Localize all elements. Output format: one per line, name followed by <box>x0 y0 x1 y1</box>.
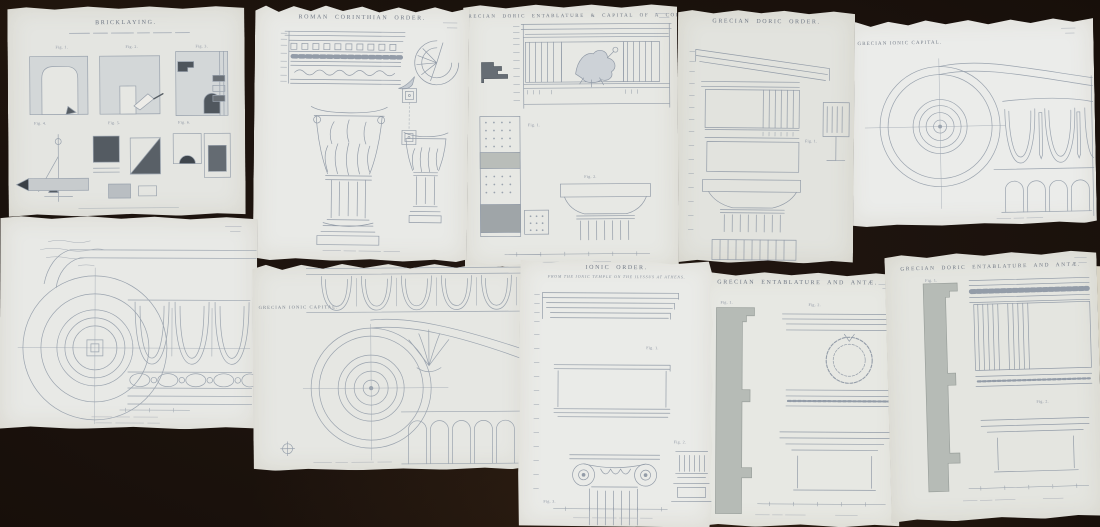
handwritten-inscription <box>40 240 104 266</box>
ionic-volute-drawing <box>843 16 1097 228</box>
plate-grecian-ionic-capital-bottom: GRECIAN IONIC CAPITAL. <box>252 261 525 471</box>
anta-profile-silhouette <box>715 308 754 514</box>
cornice-profile-silhouette <box>481 62 507 82</box>
corinthian-capital-large <box>310 106 387 245</box>
plate-roman-corinthian-order: ROMAN CORINTHIAN ORDER. <box>253 3 470 262</box>
ionic-volute-drawing <box>252 261 525 471</box>
plan-details <box>402 88 417 144</box>
plate-grecian-doric-entablature-capital: GRECIAN DORIC ENTABLATURE & CAPITAL OF A… <box>463 3 679 268</box>
base-detail <box>671 451 711 501</box>
guttae-panel <box>480 116 549 236</box>
modillion-row <box>291 43 396 50</box>
doric-order-drawing <box>676 9 855 264</box>
ionic-volute-drawing <box>0 216 257 430</box>
plate-grecian-doric-entablature-anta: GRECIAN DORIC ENTABLATURE AND ANTÆ. Fig.… <box>884 249 1100 523</box>
bricklaying-figures-drawing <box>7 5 245 217</box>
plate-ionic-order: IONIC ORDER. FROM THE IONIC TEMPLE ON TH… <box>517 258 714 527</box>
ionic-capital-drawing <box>569 455 659 525</box>
corinthian-capital-small <box>403 132 448 222</box>
palmette-ornament <box>409 330 449 372</box>
doric-entablature-drawing <box>463 3 679 268</box>
dentil-row <box>971 288 1087 291</box>
fluting-detail <box>401 411 521 464</box>
anta-capital-drawing <box>981 417 1090 472</box>
egg-and-dart-band <box>321 275 516 310</box>
egg-and-dart-band <box>1003 97 1094 163</box>
bead-and-reel-band <box>128 372 258 388</box>
anta-capital-drawing <box>780 432 890 491</box>
entablature-anta-drawing <box>693 271 900 527</box>
ionic-order-drawing <box>517 258 714 527</box>
corinthian-order-drawing <box>253 3 470 262</box>
photo-of-engraving-plates: BRICKLAYING. Fig. 1. Fig. 2. Fig. 3. Fig… <box>0 0 1100 527</box>
rosette-detail <box>398 40 459 89</box>
anta-profile-silhouette <box>923 283 963 492</box>
compass-mark <box>281 442 295 456</box>
plate-bricklaying: BRICKLAYING. Fig. 1. Fig. 2. Fig. 3. Fig… <box>7 5 245 217</box>
metope-centaur-figure <box>575 47 618 87</box>
egg-and-dart-band <box>128 300 250 364</box>
doric-entablature-anta-drawing <box>884 249 1100 523</box>
fluting-detail <box>994 168 1095 213</box>
plate-grecian-entablature-anta: GRECIAN ENTABLATURE AND ANTÆ. Fig. 1. Fi… <box>693 271 900 527</box>
wreath-ornament <box>826 334 872 383</box>
plate-grecian-doric-order: GRECIAN DORIC ORDER. Fig. 1. <box>676 9 855 264</box>
plate-grecian-ionic-capital-top: GRECIAN IONIC CAPITAL. <box>843 16 1097 228</box>
doric-capital-drawing <box>560 183 650 240</box>
plate-ionic-volute-study <box>0 216 257 430</box>
